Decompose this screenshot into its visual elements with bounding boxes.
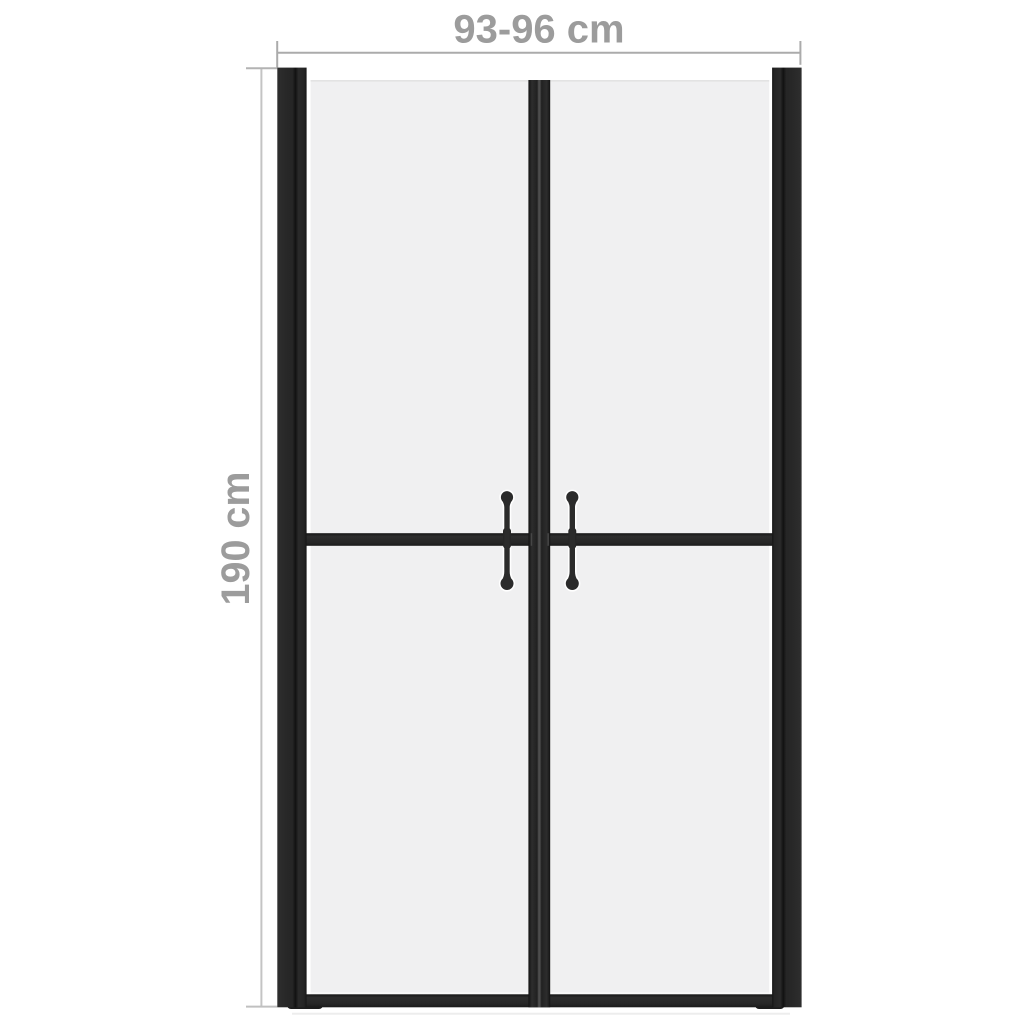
svg-text:190 cm: 190 cm [214, 472, 258, 606]
svg-text:93-96 cm: 93-96 cm [453, 7, 624, 51]
